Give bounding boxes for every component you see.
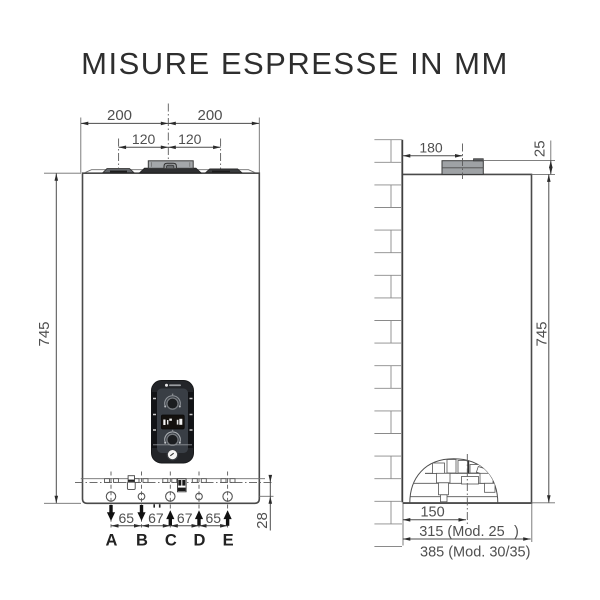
svg-text:120: 120: [132, 131, 156, 147]
svg-text:A: A: [106, 532, 118, 550]
svg-text:67: 67: [177, 510, 193, 526]
svg-text:315 (Mod. 25): 315 (Mod. 25): [419, 524, 519, 540]
svg-text:200: 200: [197, 107, 222, 124]
svg-text:67: 67: [148, 510, 164, 526]
svg-text:28: 28: [254, 512, 271, 529]
svg-text:180: 180: [419, 139, 443, 155]
svg-text:385 (Mod. 30/35): 385 (Mod. 30/35): [420, 545, 530, 561]
svg-text:745: 745: [534, 321, 551, 346]
svg-text:120: 120: [178, 131, 202, 147]
svg-text:745: 745: [36, 321, 53, 346]
svg-text:E: E: [223, 532, 234, 550]
svg-text:200: 200: [107, 107, 132, 124]
svg-text:25: 25: [532, 140, 549, 157]
svg-text:150: 150: [420, 505, 444, 521]
svg-text:C: C: [165, 532, 177, 550]
svg-text:65: 65: [119, 510, 135, 526]
svg-text:B: B: [136, 532, 148, 550]
svg-text:65: 65: [206, 510, 222, 526]
svg-text:MISURE ESPRESSE IN MM: MISURE ESPRESSE IN MM: [81, 46, 509, 81]
svg-text:D: D: [194, 532, 206, 550]
